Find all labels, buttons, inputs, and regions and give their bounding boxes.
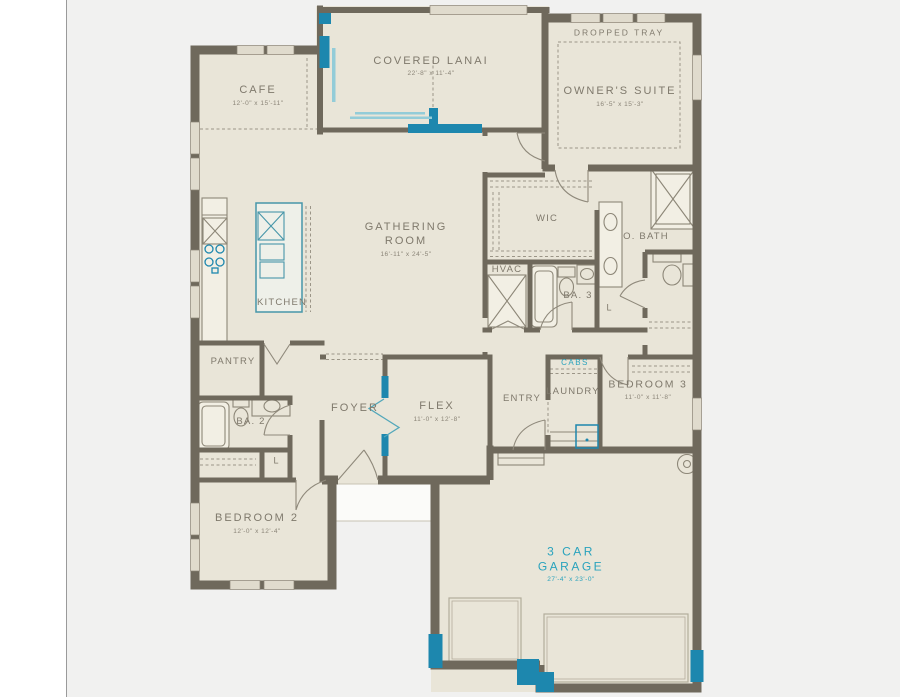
room-label-ba3: BA. 3 [563, 290, 592, 302]
room-label-owners-suite: OWNER'S SUITE [563, 85, 676, 99]
room-dims-cafe: 12'-0" x 15'-11" [232, 100, 283, 108]
room-label-bedroom3: BEDROOM 3 [608, 378, 687, 391]
dropped-tray-label: DROPPED TRAY [574, 28, 664, 39]
room-label-entry: ENTRY [503, 393, 541, 405]
room-label-laundry: LAUNDRY [546, 386, 600, 398]
room-dims-bedroom3: 11'-0" x 11'-8" [625, 394, 672, 402]
room-label-foyer: FOYER [331, 402, 379, 416]
room-label-bedroom2: BEDROOM 2 [215, 512, 299, 526]
room-dims-gathering: 16'-11" x 24'-5" [380, 251, 431, 259]
room-label-flex: FLEX [419, 400, 455, 414]
room-label-pantry: PANTRY [211, 356, 256, 368]
room-dims-bedroom2: 12'-0" x 12'-4" [233, 528, 280, 536]
room-label-wic: WIC [536, 213, 558, 225]
floorplan-page: CAFE 12'-0" x 15'-11" COVERED LANAI 22'-… [0, 0, 900, 697]
cabs-label: CABS [561, 358, 589, 368]
room-label-lanai: COVERED LANAI [373, 55, 488, 69]
linen-label-obath: L [606, 302, 611, 313]
room-dims-garage: 27'-4" x 23'-0" [547, 576, 594, 584]
room-label-ba2: BA. 2 [236, 416, 265, 428]
room-dims-lanai: 22'-8" x 11'-4" [408, 70, 455, 78]
room-label-hvac: HVAC [492, 264, 523, 276]
room-label-cafe: CAFE [239, 84, 276, 98]
room-label-garage-line2: GARAGE [538, 560, 604, 575]
room-label-garage-line1: 3 CAR [547, 545, 595, 560]
room-dims-owners-suite: 16'-5" x 15'-3" [596, 101, 643, 109]
linen-label-ba2: L [273, 455, 278, 466]
room-dims-flex: 11'-0" x 12'-8" [414, 416, 461, 424]
floorplan-svg [0, 0, 900, 697]
porch [333, 484, 433, 521]
room-label-obath: O. BATH [623, 231, 669, 243]
room-label-gathering-line2: ROOM [385, 235, 427, 249]
room-label-kitchen: KITCHEN [257, 297, 307, 309]
room-label-gathering-line1: GATHERING [365, 221, 448, 235]
